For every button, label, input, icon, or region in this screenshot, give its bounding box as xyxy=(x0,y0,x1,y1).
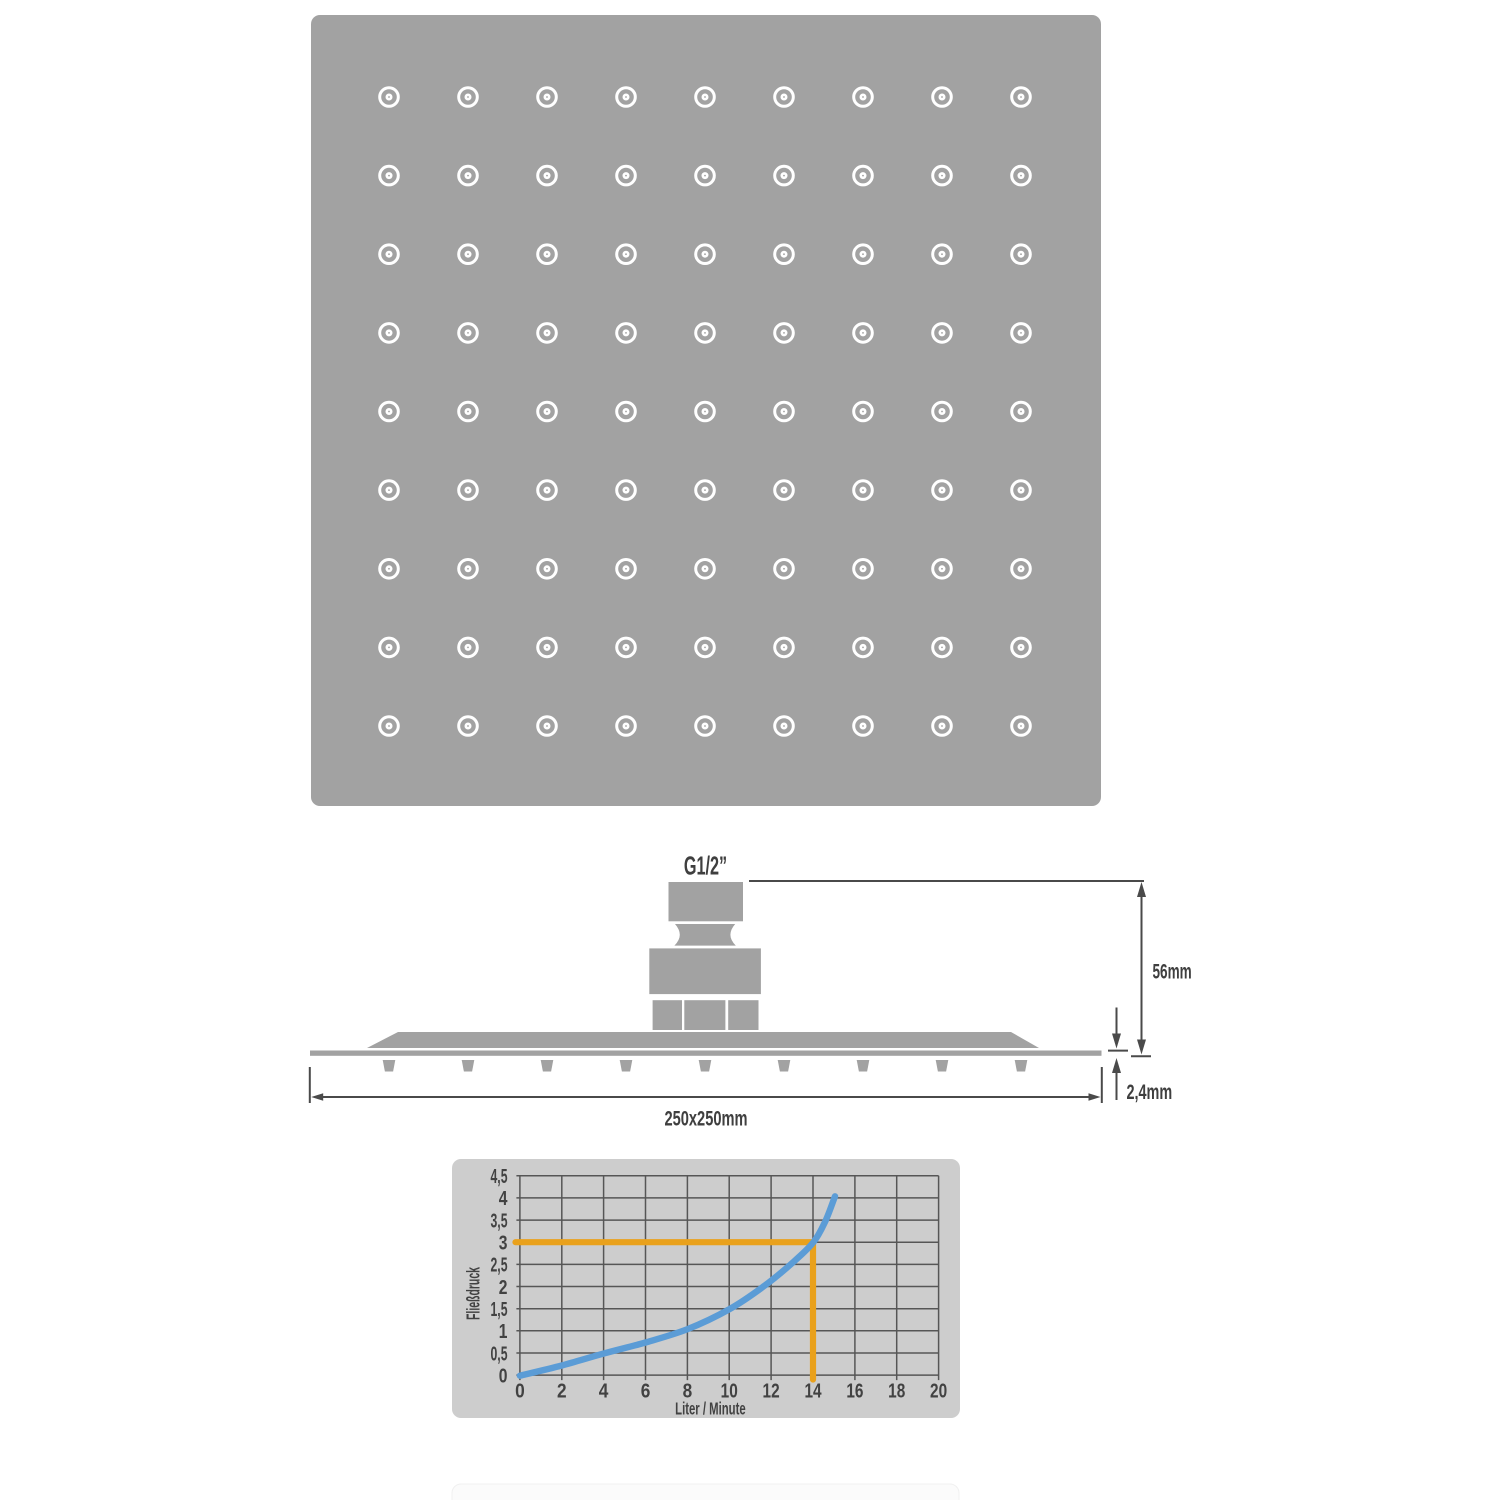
svg-text:18: 18 xyxy=(888,1380,905,1403)
svg-text:1,5: 1,5 xyxy=(491,1298,508,1321)
svg-text:6: 6 xyxy=(641,1380,651,1403)
svg-text:250x250mm: 250x250mm xyxy=(665,1108,748,1131)
svg-text:3,5: 3,5 xyxy=(491,1209,508,1232)
svg-text:20: 20 xyxy=(930,1380,947,1403)
svg-text:16: 16 xyxy=(846,1380,863,1403)
svg-text:2,4mm: 2,4mm xyxy=(1127,1081,1173,1104)
svg-text:4,5: 4,5 xyxy=(491,1165,508,1188)
svg-text:1: 1 xyxy=(499,1320,508,1343)
svg-text:2: 2 xyxy=(499,1276,508,1299)
svg-text:0: 0 xyxy=(515,1380,525,1403)
svg-text:14: 14 xyxy=(804,1380,822,1403)
svg-text:0: 0 xyxy=(499,1364,508,1387)
svg-text:2: 2 xyxy=(557,1380,567,1403)
svg-text:12: 12 xyxy=(763,1380,780,1403)
svg-text:G1/2”: G1/2” xyxy=(684,851,727,881)
svg-text:3: 3 xyxy=(499,1232,508,1255)
svg-text:Liter / Minute: Liter / Minute xyxy=(675,1399,746,1419)
svg-text:4: 4 xyxy=(499,1187,508,1210)
svg-text:2,5: 2,5 xyxy=(491,1254,508,1277)
svg-text:4: 4 xyxy=(599,1380,609,1403)
svg-text:0,5: 0,5 xyxy=(491,1342,508,1365)
svg-text:56mm: 56mm xyxy=(1153,961,1192,984)
svg-text:Fließdruck: Fließdruck xyxy=(464,1266,484,1320)
